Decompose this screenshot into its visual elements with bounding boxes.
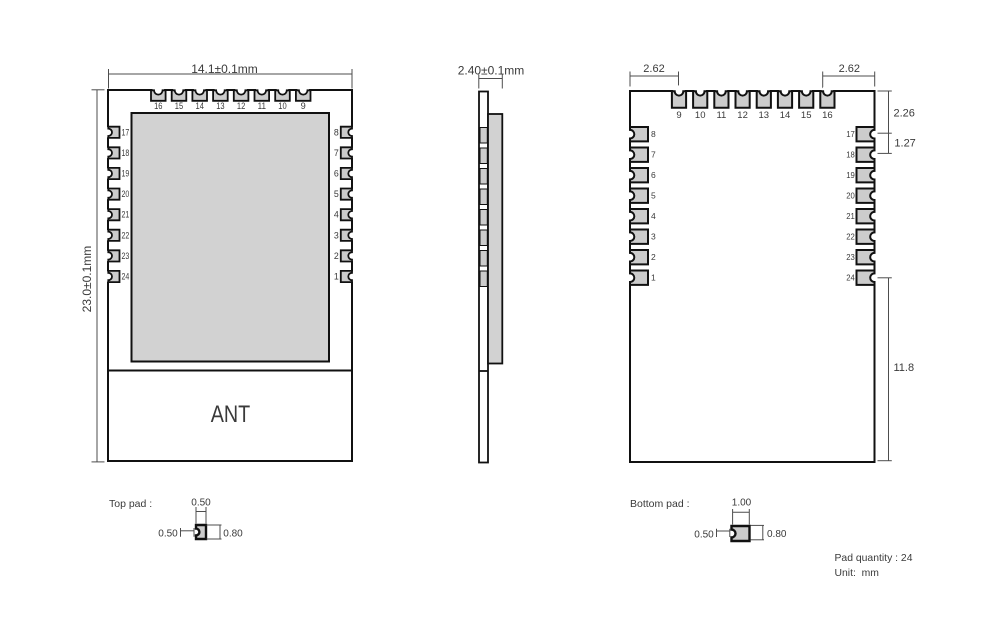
svg-text:16: 16 [822, 110, 833, 121]
svg-text:1.27: 1.27 [894, 138, 915, 150]
svg-text:Pad quantity : 24: Pad quantity : 24 [835, 553, 913, 564]
svg-text:1: 1 [334, 272, 339, 282]
svg-text:23: 23 [846, 252, 855, 262]
svg-text:23: 23 [122, 251, 130, 261]
svg-text:15: 15 [801, 110, 812, 121]
svg-text:11: 11 [716, 110, 726, 121]
svg-text:2: 2 [334, 251, 339, 261]
svg-text:Bottom pad :: Bottom pad : [630, 498, 690, 510]
svg-text:1: 1 [651, 273, 656, 283]
svg-text:0.50: 0.50 [191, 498, 211, 509]
svg-text:11: 11 [258, 101, 266, 111]
svg-text:24: 24 [122, 272, 130, 282]
svg-text:15: 15 [175, 101, 183, 111]
svg-text:10: 10 [278, 101, 286, 111]
svg-text:0.80: 0.80 [767, 529, 787, 540]
svg-text:0.80: 0.80 [223, 528, 243, 539]
svg-text:17: 17 [122, 127, 130, 137]
svg-text:11.8: 11.8 [894, 362, 915, 374]
svg-text:6: 6 [651, 170, 656, 180]
svg-text:3: 3 [651, 232, 656, 242]
svg-text:23.0±0.1mm: 23.0±0.1mm [80, 246, 94, 313]
svg-text:2.62: 2.62 [643, 63, 664, 75]
svg-text:18: 18 [122, 148, 130, 158]
svg-text:4: 4 [651, 211, 656, 221]
svg-text:20: 20 [846, 191, 855, 201]
svg-text:2: 2 [651, 252, 656, 262]
svg-text:19: 19 [122, 169, 130, 179]
svg-text:18: 18 [846, 150, 855, 160]
svg-text:2.40±0.1mm: 2.40±0.1mm [458, 64, 525, 78]
svg-text:21: 21 [846, 211, 855, 221]
svg-text:16: 16 [154, 101, 162, 111]
svg-text:14: 14 [780, 110, 791, 121]
svg-text:1.00: 1.00 [732, 498, 752, 509]
svg-text:6: 6 [334, 169, 339, 179]
svg-text:22: 22 [846, 232, 855, 242]
svg-text:8: 8 [334, 127, 339, 137]
svg-text:7: 7 [334, 148, 339, 158]
svg-text:0.50: 0.50 [158, 529, 178, 540]
svg-text:0.50: 0.50 [694, 530, 714, 541]
svg-text:24: 24 [846, 273, 855, 283]
svg-text:7: 7 [651, 150, 656, 160]
svg-text:19: 19 [846, 170, 855, 180]
svg-text:17: 17 [846, 129, 855, 139]
svg-text:9: 9 [301, 101, 306, 111]
svg-text:20: 20 [122, 189, 130, 199]
svg-text:5: 5 [651, 191, 656, 201]
svg-text:14: 14 [196, 101, 204, 111]
svg-text:2.26: 2.26 [894, 108, 915, 120]
svg-text:12: 12 [237, 101, 245, 111]
svg-text:8: 8 [651, 129, 656, 139]
svg-text:Top pad :: Top pad : [109, 498, 152, 510]
svg-text:13: 13 [759, 110, 770, 121]
svg-text:Unit: mm: Unit: mm [835, 568, 879, 579]
svg-text:10: 10 [695, 110, 706, 121]
svg-text:21: 21 [122, 210, 130, 220]
svg-text:12: 12 [737, 110, 748, 121]
svg-text:5: 5 [334, 189, 339, 199]
svg-text:ANT: ANT [211, 401, 251, 428]
svg-text:9: 9 [676, 110, 681, 121]
svg-text:22: 22 [122, 230, 130, 240]
svg-text:14.1±0.1mm: 14.1±0.1mm [191, 62, 258, 76]
svg-text:4: 4 [334, 210, 339, 220]
svg-text:13: 13 [216, 101, 224, 111]
svg-text:2.62: 2.62 [839, 63, 860, 75]
svg-text:3: 3 [334, 230, 339, 240]
